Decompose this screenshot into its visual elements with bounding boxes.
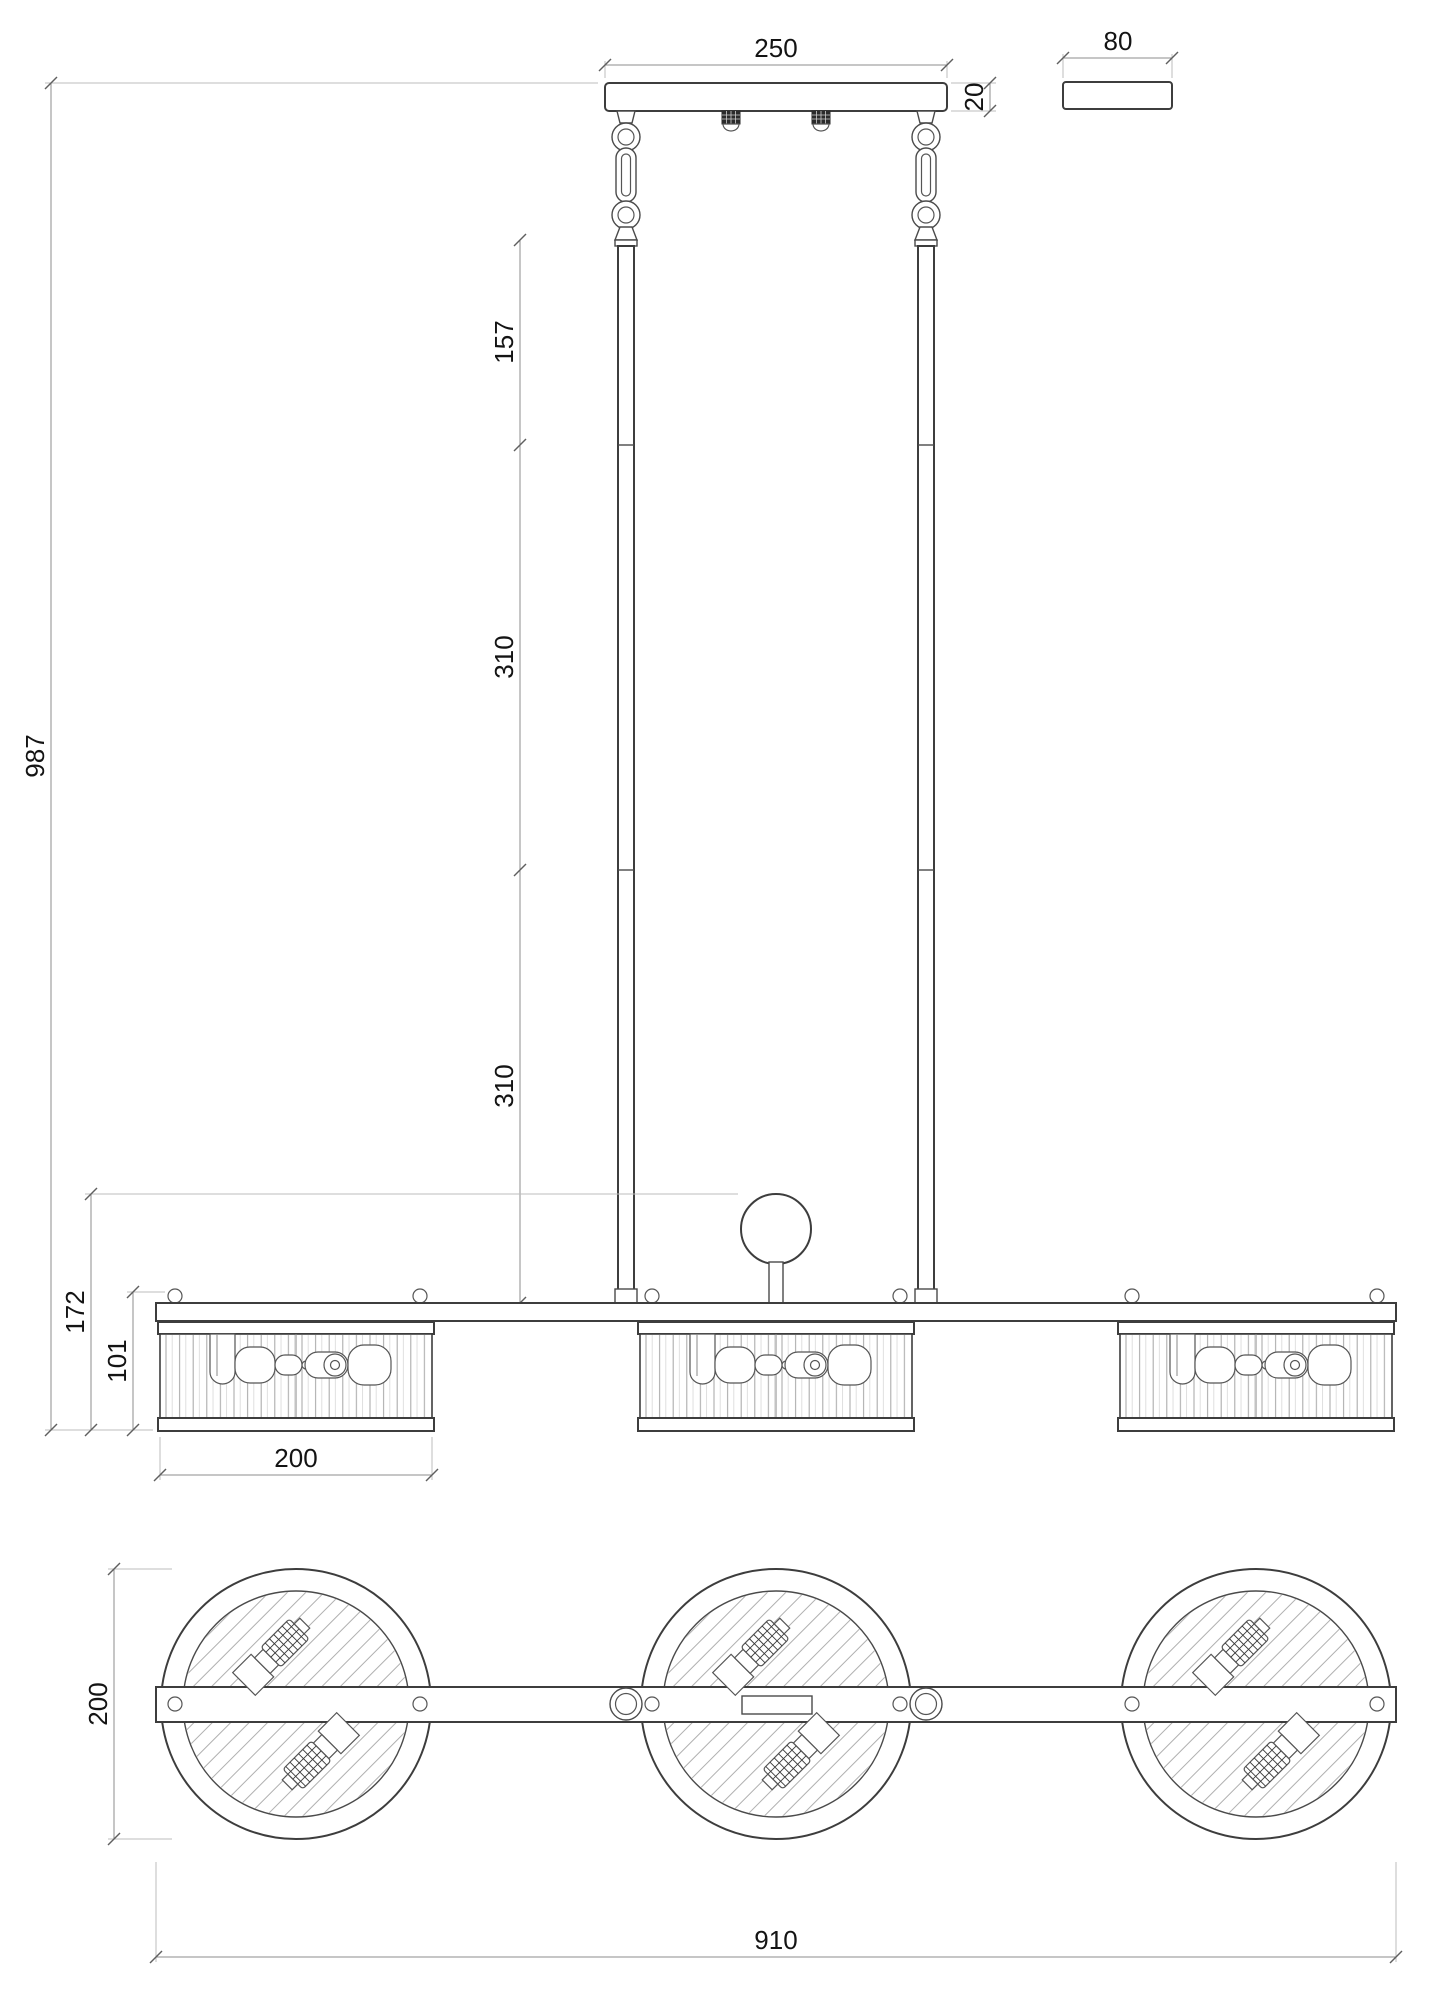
shade-front-right [1118, 1322, 1394, 1431]
plan-screw-hole [893, 1697, 907, 1711]
canopy-screw-right [812, 111, 830, 131]
plan-center-plate [742, 1696, 812, 1714]
dim-overall-length: 910 [150, 1862, 1402, 1963]
dim-overall-height: 987 [20, 77, 598, 1436]
suspension-chain-rod-left [612, 111, 640, 1303]
dim-label-rod-lower: 310 [489, 1064, 519, 1107]
plan-screw-hole [645, 1697, 659, 1711]
plan-screw-hole [1125, 1697, 1139, 1711]
plan-screw-hole [168, 1697, 182, 1711]
dim-label-overall-length: 910 [754, 1925, 797, 1955]
plan-suspension-ring-left [610, 1688, 642, 1720]
dim-label-canopy-width: 250 [754, 33, 797, 63]
dim-rod-segments: 157 310 310 [489, 234, 526, 1309]
chandelier-dimension-drawing: 250 20 80 157 310 310 987 [0, 0, 1430, 2000]
dim-label-plan-diameter: 200 [83, 1682, 113, 1725]
dim-label-body-height: 172 [60, 1290, 90, 1333]
suspension-chain-rod-right [912, 111, 940, 1303]
plan-suspension-ring-right [910, 1688, 942, 1720]
ceiling-canopy-front [605, 83, 947, 131]
dim-shade-width: 200 [154, 1437, 438, 1481]
dim-label-overall-height: 987 [20, 734, 50, 777]
plan-screw-hole [1370, 1697, 1384, 1711]
canopy-screw-left [722, 111, 740, 131]
dim-label-rod-upper: 157 [489, 320, 519, 363]
dim-label-rod-middle: 310 [489, 635, 519, 678]
ball-finial [741, 1194, 811, 1303]
dim-canopy-thickness: 20 [951, 77, 996, 117]
technical-drawing-sheet: 250 20 80 157 310 310 987 [0, 0, 1430, 2000]
dim-label-canopy-side-width: 80 [1104, 26, 1133, 56]
shade-front-center [638, 1322, 914, 1431]
dim-label-shade-width: 200 [274, 1443, 317, 1473]
dim-canopy-side-width: 80 [1057, 26, 1178, 78]
dim-label-canopy-thickness: 20 [959, 83, 989, 112]
shade-front-left [158, 1322, 434, 1431]
dim-label-shade-height: 101 [102, 1339, 132, 1382]
canopy-side-view [1063, 82, 1172, 109]
plan-view [156, 1569, 1396, 1839]
dim-canopy-width: 250 [599, 33, 953, 78]
plan-screw-hole [413, 1697, 427, 1711]
